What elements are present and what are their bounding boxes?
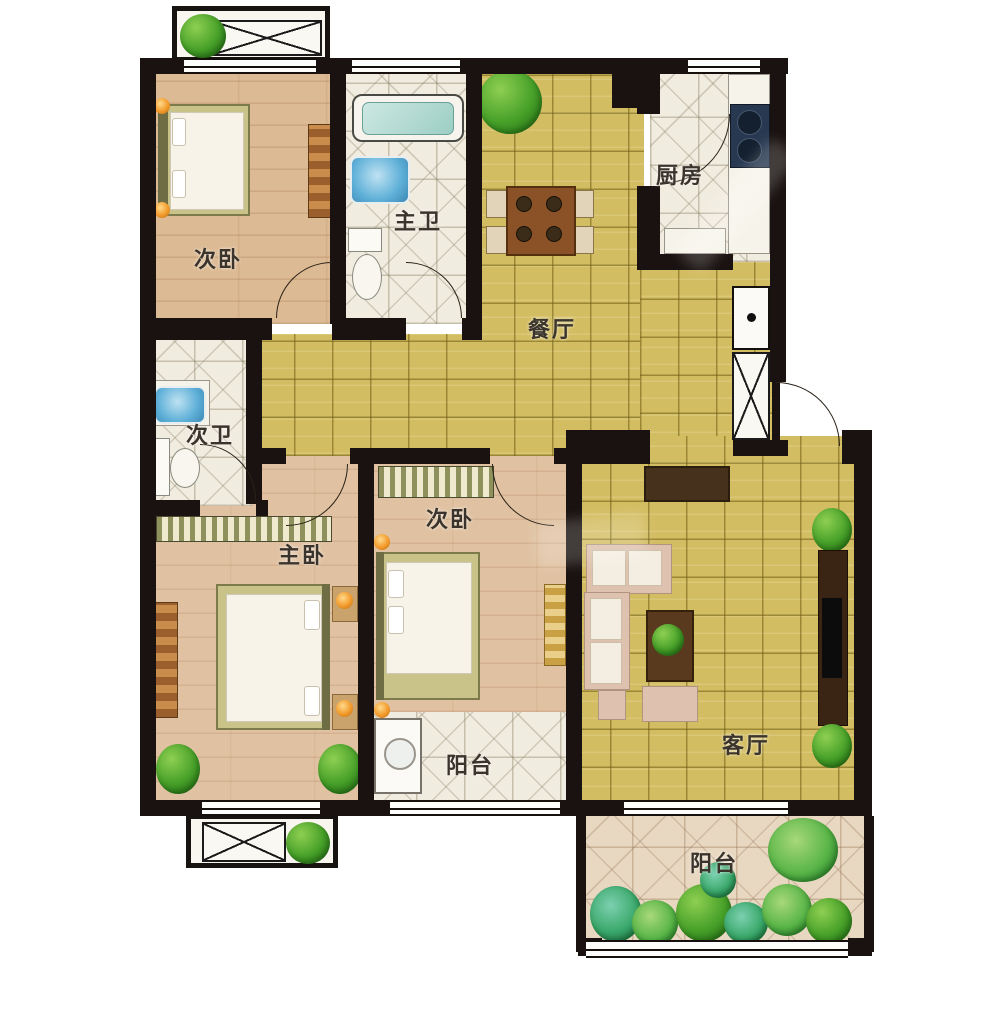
duct-shaft: [732, 352, 770, 440]
room-label-master-bedroom: 主卧: [278, 538, 326, 570]
sofa-cushion: [590, 598, 622, 640]
dresser-middle: [544, 584, 566, 666]
floor-corridor: [256, 334, 482, 456]
room-label-balcony-inner: 阳台: [446, 748, 494, 780]
room-label-bedroom-north: 次卧: [194, 242, 242, 274]
plant-icon: [156, 744, 200, 794]
wall: [256, 448, 286, 464]
balcony-rail: [864, 816, 874, 952]
window: [184, 58, 316, 74]
plant-icon: [768, 818, 838, 882]
wall: [462, 318, 482, 340]
balcony-rail-window: [586, 940, 848, 958]
wall: [332, 318, 406, 340]
stool: [598, 690, 626, 720]
window: [352, 58, 460, 74]
wall: [854, 440, 872, 816]
stove-burner-icon: [737, 110, 762, 135]
bed-north-pillow: [172, 170, 186, 198]
wall: [350, 448, 490, 464]
room-label-second-bath: 次卫: [186, 418, 234, 450]
lamp-icon: [374, 534, 390, 550]
room-label-master-bath: 主卫: [394, 204, 442, 236]
bed-middle-pillow: [388, 570, 404, 598]
wall: [256, 500, 268, 516]
sofa-cushion: [590, 642, 622, 684]
ac-unit-icon: [212, 20, 322, 56]
vent-shaft-dot-icon: [747, 313, 756, 322]
lamp-icon: [374, 702, 390, 718]
plant-icon: [652, 624, 684, 656]
plant-icon: [812, 724, 852, 768]
plant-icon: [318, 744, 362, 794]
plant-icon: [762, 884, 812, 936]
room-label-dining: 餐厅: [528, 312, 576, 344]
wall: [140, 800, 202, 816]
wall: [770, 58, 786, 382]
wall: [560, 800, 624, 816]
lamp-icon: [336, 700, 353, 717]
entry-mat: [644, 466, 730, 502]
plant-icon: [478, 70, 542, 134]
tableware: [546, 226, 562, 242]
ac-unit-icon: [202, 822, 286, 862]
bed-north-pillow: [172, 118, 186, 146]
tableware: [546, 196, 562, 212]
lamp-icon: [154, 98, 170, 114]
room-label-balcony-south: 阳台: [690, 846, 738, 878]
toilet-tank: [348, 228, 382, 252]
wall: [320, 800, 390, 816]
room-label-kitchen: 厨房: [656, 158, 704, 190]
wall: [140, 58, 156, 816]
floor-plan: 次卧 主卫 餐厅 厨房 次卫 主卧 次卧 阳台 客厅 阳台: [0, 0, 1000, 1030]
bed-middle-pillow: [388, 606, 404, 634]
washer-drum-icon: [384, 738, 416, 770]
toilet-bowl: [170, 448, 200, 488]
sliding-door: [624, 800, 788, 816]
wall: [330, 74, 346, 324]
door-arc-entry: [776, 382, 840, 446]
bed-middle-headboard: [376, 552, 384, 700]
window: [688, 58, 760, 74]
wardrobe-middle: [378, 466, 494, 498]
window: [202, 800, 320, 816]
bed-master-pillow: [304, 600, 320, 630]
sliding-window: [390, 800, 560, 816]
plant-icon: [286, 822, 330, 864]
tableware: [516, 226, 532, 242]
dining-table: [506, 186, 576, 256]
wall: [788, 800, 854, 816]
bed-master-pillow: [304, 686, 320, 716]
balcony-rail: [848, 938, 872, 956]
tableware: [516, 196, 532, 212]
dresser-north: [308, 124, 332, 218]
bed-north-headboard: [158, 104, 168, 216]
plant-icon: [812, 508, 852, 552]
plant-icon: [806, 898, 852, 944]
tv: [822, 598, 842, 678]
bed-master-headboard: [322, 584, 330, 730]
wall: [466, 74, 482, 318]
armchair: [642, 686, 698, 722]
plant-icon: [180, 14, 226, 58]
wall: [358, 464, 374, 800]
lamp-icon: [336, 592, 353, 609]
wall: [637, 74, 660, 114]
lamp-icon: [154, 202, 170, 218]
bathtub-basin: [362, 102, 454, 135]
balcony-rail: [576, 816, 586, 952]
sink-master-bath: [350, 156, 410, 204]
toilet-bowl: [352, 254, 382, 300]
room-label-bedroom-middle: 次卧: [426, 502, 474, 534]
wall: [140, 500, 200, 516]
wall: [566, 446, 582, 800]
room-label-living-room: 客厅: [722, 728, 770, 760]
